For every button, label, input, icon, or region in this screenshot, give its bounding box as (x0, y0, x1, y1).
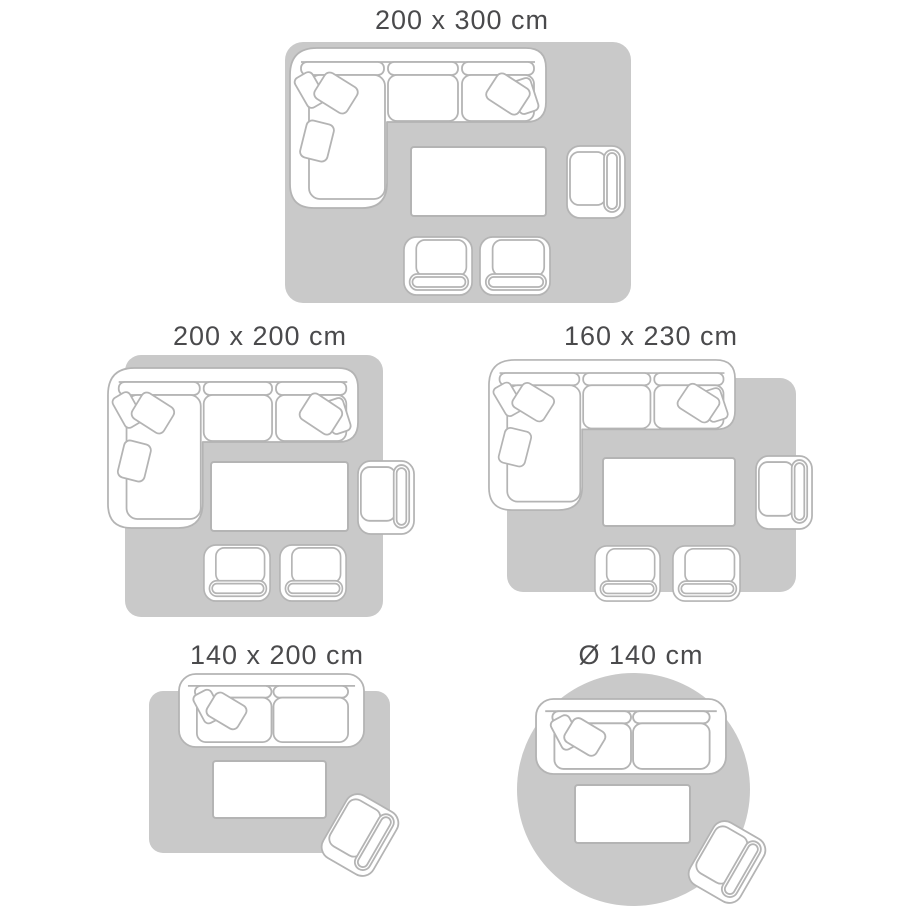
coffee-table-illustration (574, 784, 691, 844)
armchair-illustration (755, 455, 813, 530)
sofa-illustration (178, 673, 365, 748)
size-label: 200 x 300 cm (292, 5, 632, 35)
coffee-table-illustration (212, 760, 327, 819)
footstool-chair-illustration (672, 545, 741, 602)
corner-sofa-illustration (488, 359, 736, 511)
footstool-chair-illustration (203, 544, 271, 602)
size-label: 160 x 230 cm (481, 321, 821, 351)
footstool-chair-illustration (279, 544, 347, 602)
footstool-chair-illustration (403, 236, 473, 296)
footstool-chair-illustration (479, 236, 551, 296)
armchair-illustration (566, 145, 626, 219)
sofa-illustration (535, 698, 727, 775)
size-label: 140 x 200 cm (107, 640, 447, 670)
corner-sofa-illustration (289, 47, 547, 209)
rug-size-guide: 200 x 300 cm 200 x 200 cm 160 x 230 cm 1… (0, 0, 920, 920)
armchair-illustration (357, 460, 415, 535)
footstool-chair-illustration (594, 545, 661, 602)
corner-sofa-illustration (107, 367, 359, 529)
size-label: 200 x 200 cm (90, 321, 430, 351)
size-label: Ø 140 cm (471, 640, 811, 670)
